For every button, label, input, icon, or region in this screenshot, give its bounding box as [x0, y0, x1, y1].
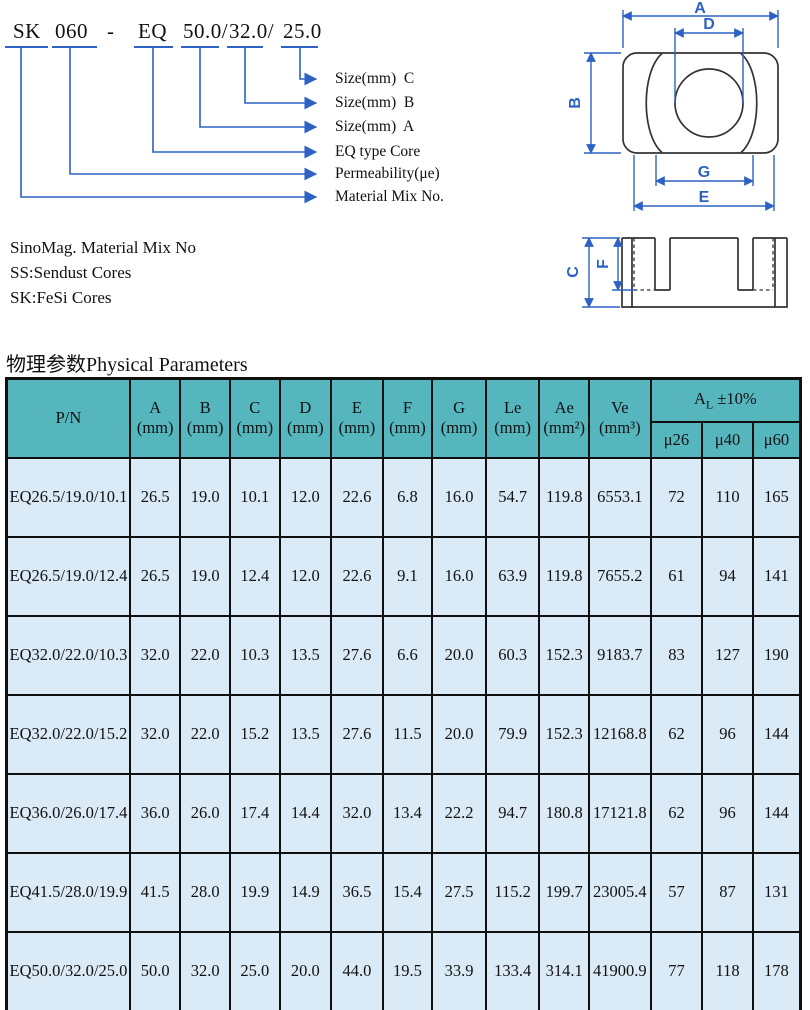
table-row: EQ32.0/22.0/10.332.022.010.313.527.66.62… — [7, 616, 801, 695]
code-label-material: Material Mix No. — [335, 188, 444, 206]
col-header-label: A — [131, 398, 180, 419]
value-cell: 17121.8 — [589, 774, 651, 853]
code-label-permeability: Permeability(μe) — [335, 165, 440, 183]
value-cell: 19.9 — [230, 853, 280, 932]
table-row: EQ36.0/26.0/17.436.026.017.414.432.013.4… — [7, 774, 801, 853]
table-body: EQ26.5/19.0/10.126.519.010.112.022.66.81… — [7, 458, 801, 1010]
dim-label-c: C — [565, 266, 582, 278]
value-cell: 60.3 — [486, 616, 540, 695]
value-cell: 17.4 — [230, 774, 280, 853]
col-header-al: AL ±10% — [651, 379, 801, 422]
col-header-label: C — [231, 398, 279, 419]
value-cell: 12.0 — [280, 537, 332, 616]
value-cell: 94.7 — [486, 774, 540, 853]
value-cell: 36.5 — [331, 853, 383, 932]
col-header-f: F (mm) — [383, 379, 433, 458]
value-cell: 19.5 — [383, 932, 433, 1010]
value-cell: 19.0 — [180, 458, 230, 537]
value-cell: 27.6 — [331, 695, 383, 774]
value-cell: 19.0 — [180, 537, 230, 616]
value-cell: 118 — [702, 932, 753, 1010]
core-side-view — [622, 238, 787, 307]
value-cell: 77 — [651, 932, 703, 1010]
value-cell: 12.4 — [230, 537, 280, 616]
col-header-label: E — [332, 398, 382, 419]
value-cell: 72 — [651, 458, 703, 537]
col-header-e: E (mm) — [331, 379, 383, 458]
part-number-cell: EQ32.0/22.0/10.3 — [7, 616, 130, 695]
value-cell: 23005.4 — [589, 853, 651, 932]
value-cell: 41900.9 — [589, 932, 651, 1010]
value-cell: 33.9 — [432, 932, 486, 1010]
col-header-unit: (mm) — [231, 418, 279, 439]
col-header-label: Le — [487, 398, 539, 419]
value-cell: 62 — [651, 774, 703, 853]
col-header-unit: (mm) — [487, 418, 539, 439]
value-cell: 119.8 — [539, 458, 589, 537]
note-sendust: SS:Sendust Cores — [10, 263, 131, 283]
al-symbol: A — [694, 389, 706, 408]
value-cell: 94 — [702, 537, 753, 616]
value-cell: 22.6 — [331, 537, 383, 616]
value-cell: 15.4 — [383, 853, 433, 932]
value-cell: 115.2 — [486, 853, 540, 932]
dim-label-f: F — [595, 259, 612, 269]
value-cell: 133.4 — [486, 932, 540, 1010]
core-top-view — [623, 53, 778, 153]
value-cell: 6553.1 — [589, 458, 651, 537]
value-cell: 27.6 — [331, 616, 383, 695]
value-cell: 16.0 — [432, 458, 486, 537]
value-cell: 11.5 — [383, 695, 433, 774]
col-header-label: Ve — [590, 398, 650, 419]
part-number-cell: EQ26.5/19.0/12.4 — [7, 537, 130, 616]
col-header-d: D (mm) — [280, 379, 332, 458]
col-header-unit: (mm) — [131, 418, 180, 439]
value-cell: 26.0 — [180, 774, 230, 853]
table-row: EQ50.0/32.0/25.050.032.025.020.044.019.5… — [7, 932, 801, 1010]
value-cell: 36.0 — [130, 774, 181, 853]
value-cell: 190 — [753, 616, 801, 695]
core-dimension-drawing: A D B G E C F — [565, 0, 810, 335]
value-cell: 14.9 — [280, 853, 332, 932]
col-header-g: G (mm) — [432, 379, 486, 458]
value-cell: 178 — [753, 932, 801, 1010]
col-header-unit: (mm) — [332, 418, 382, 439]
code-label-size-a: Size(mm) A — [335, 118, 414, 136]
value-cell: 26.5 — [130, 458, 181, 537]
col-header-c: C (mm) — [230, 379, 280, 458]
value-cell: 13.5 — [280, 695, 332, 774]
value-cell: 96 — [702, 695, 753, 774]
value-cell: 32.0 — [130, 616, 181, 695]
value-cell: 7655.2 — [589, 537, 651, 616]
al-tolerance: ±10% — [713, 389, 756, 408]
value-cell: 141 — [753, 537, 801, 616]
part-number-cell: EQ41.5/28.0/19.9 — [7, 853, 130, 932]
code-label-size-b: Size(mm) B — [335, 94, 414, 112]
value-cell: 314.1 — [539, 932, 589, 1010]
value-cell: 165 — [753, 458, 801, 537]
datasheet-page: SK 060 - EQ 50.0/ 32.0/ 25.0 Size(m — [0, 0, 810, 1010]
value-cell: 20.0 — [432, 695, 486, 774]
value-cell: 6.8 — [383, 458, 433, 537]
part-number-cell: EQ50.0/32.0/25.0 — [7, 932, 130, 1010]
value-cell: 79.9 — [486, 695, 540, 774]
col-header-label: D — [281, 398, 331, 419]
value-cell: 32.0 — [331, 774, 383, 853]
value-cell: 20.0 — [432, 616, 486, 695]
col-header-unit: (mm²) — [540, 418, 588, 439]
col-header-a: A (mm) — [130, 379, 181, 458]
col-header-pn: P/N — [7, 379, 130, 458]
value-cell: 131 — [753, 853, 801, 932]
col-header-label: Ae — [540, 398, 588, 419]
col-header-unit: (mm³) — [590, 418, 650, 439]
code-connector-lines — [0, 0, 560, 220]
part-number-cell: EQ26.5/19.0/10.1 — [7, 458, 130, 537]
col-header-unit: (mm) — [181, 418, 229, 439]
value-cell: 96 — [702, 774, 753, 853]
value-cell: 87 — [702, 853, 753, 932]
table-row: EQ26.5/19.0/10.126.519.010.112.022.66.81… — [7, 458, 801, 537]
value-cell: 63.9 — [486, 537, 540, 616]
col-header-label: G — [433, 398, 485, 419]
value-cell: 12168.8 — [589, 695, 651, 774]
value-cell: 110 — [702, 458, 753, 537]
col-header-unit: (mm) — [281, 418, 331, 439]
section-title: 物理参数Physical Parameters — [6, 348, 248, 377]
value-cell: 27.5 — [432, 853, 486, 932]
value-cell: 127 — [702, 616, 753, 695]
value-cell: 15.2 — [230, 695, 280, 774]
col-header-b: B (mm) — [180, 379, 230, 458]
code-label-size-c: Size(mm) C — [335, 70, 414, 88]
value-cell: 22.2 — [432, 774, 486, 853]
value-cell: 62 — [651, 695, 703, 774]
dim-label-e: E — [699, 189, 710, 206]
value-cell: 12.0 — [280, 458, 332, 537]
value-cell: 10.1 — [230, 458, 280, 537]
value-cell: 13.4 — [383, 774, 433, 853]
value-cell: 119.8 — [539, 537, 589, 616]
value-cell: 22.0 — [180, 616, 230, 695]
table-row: EQ41.5/28.0/19.941.528.019.914.936.515.4… — [7, 853, 801, 932]
value-cell: 9183.7 — [589, 616, 651, 695]
value-cell: 20.0 — [280, 932, 332, 1010]
value-cell: 41.5 — [130, 853, 181, 932]
note-material-mix: SinoMag. Material Mix No — [10, 238, 196, 258]
value-cell: 25.0 — [230, 932, 280, 1010]
value-cell: 44.0 — [331, 932, 383, 1010]
value-cell: 199.7 — [539, 853, 589, 932]
col-header-u40: μ40 — [702, 422, 753, 458]
table-row: EQ26.5/19.0/12.426.519.012.412.022.69.11… — [7, 537, 801, 616]
value-cell: 6.6 — [383, 616, 433, 695]
value-cell: 28.0 — [180, 853, 230, 932]
dim-label-g: G — [698, 164, 710, 181]
value-cell: 54.7 — [486, 458, 540, 537]
value-cell: 180.8 — [539, 774, 589, 853]
value-cell: 26.5 — [130, 537, 181, 616]
col-header-u26: μ26 — [651, 422, 703, 458]
value-cell: 50.0 — [130, 932, 181, 1010]
value-cell: 14.4 — [280, 774, 332, 853]
col-header-ve: Ve (mm³) — [589, 379, 651, 458]
code-label-core-type: EQ type Core — [335, 143, 420, 161]
col-header-unit: (mm) — [384, 418, 432, 439]
value-cell: 57 — [651, 853, 703, 932]
col-header-le: Le (mm) — [486, 379, 540, 458]
col-header-u60: μ60 — [753, 422, 801, 458]
value-cell: 16.0 — [432, 537, 486, 616]
value-cell: 83 — [651, 616, 703, 695]
physical-parameters-table: P/N A (mm) B (mm) C (mm) D (mm) — [5, 377, 802, 1010]
value-cell: 152.3 — [539, 616, 589, 695]
value-cell: 10.3 — [230, 616, 280, 695]
col-header-ae: Ae (mm²) — [539, 379, 589, 458]
value-cell: 22.6 — [331, 458, 383, 537]
part-number-cell: EQ32.0/22.0/15.2 — [7, 695, 130, 774]
value-cell: 22.0 — [180, 695, 230, 774]
value-cell: 144 — [753, 774, 801, 853]
value-cell: 152.3 — [539, 695, 589, 774]
part-number-cell: EQ36.0/26.0/17.4 — [7, 774, 130, 853]
dim-label-b: B — [567, 97, 584, 109]
value-cell: 144 — [753, 695, 801, 774]
dim-label-a: A — [694, 0, 706, 17]
table-row: EQ32.0/22.0/15.232.022.015.213.527.611.5… — [7, 695, 801, 774]
col-header-label: B — [181, 398, 229, 419]
dim-label-d: D — [703, 16, 715, 33]
table-header: P/N A (mm) B (mm) C (mm) D (mm) — [7, 379, 801, 458]
value-cell: 32.0 — [180, 932, 230, 1010]
value-cell: 32.0 — [130, 695, 181, 774]
col-header-unit: (mm) — [433, 418, 485, 439]
col-header-label: F — [384, 398, 432, 419]
note-fesi: SK:FeSi Cores — [10, 288, 112, 308]
value-cell: 61 — [651, 537, 703, 616]
value-cell: 9.1 — [383, 537, 433, 616]
value-cell: 13.5 — [280, 616, 332, 695]
